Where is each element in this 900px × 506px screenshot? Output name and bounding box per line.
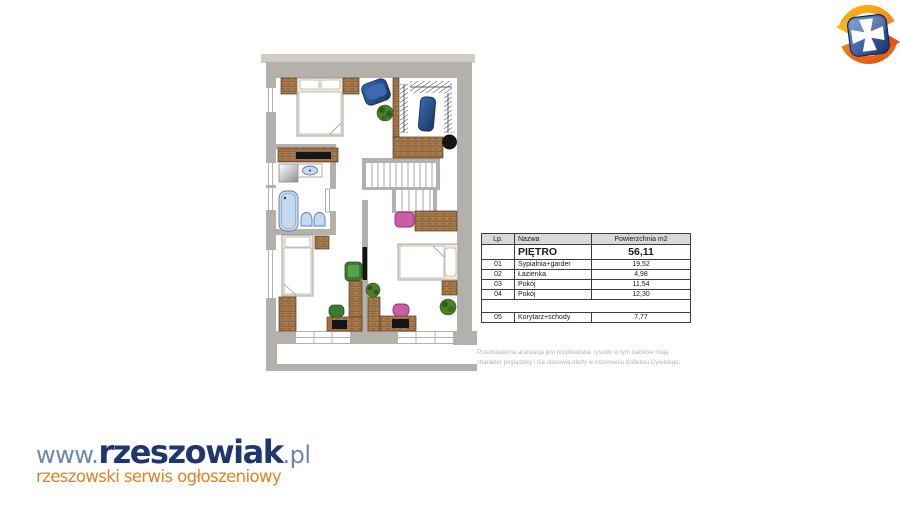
garderobe (393, 81, 457, 158)
toilet (301, 213, 312, 226)
site-watermark: www.rzeszowiak.pl rzeszowski serwis ogło… (36, 433, 311, 486)
room-sypialnia (281, 77, 399, 138)
window-left-3 (265, 188, 276, 210)
table-row: 02 Łazienka 4,98 (482, 270, 691, 280)
table-row: 04 Pokój 12,30 (482, 290, 691, 300)
table-row: 05 Korytarz+schody 7,77 (482, 313, 691, 323)
plant-04 (440, 299, 456, 315)
staircase (362, 158, 440, 213)
wall-bath-right-b (330, 211, 336, 231)
wardrobe-03 (279, 297, 296, 331)
table-row: 01 Sypialnia+garder 19,52 (482, 260, 691, 270)
nightstand-04 (442, 281, 457, 295)
laptop-04 (392, 319, 409, 328)
col-header-powierzchnia: Powierzchnia m2 (592, 234, 691, 245)
tv-wall-unit (278, 148, 338, 162)
ottoman-pink (395, 212, 414, 227)
page-root: Lp. Nazwa Powierzchnia m2 PIĘTRO 56,11 0… (0, 0, 900, 506)
wall-top (266, 62, 472, 78)
shower (279, 164, 298, 182)
wall-mounted-tv (363, 247, 368, 280)
area-table: Lp. Nazwa Powierzchnia m2 PIĘTRO 56,11 0… (481, 233, 691, 323)
floor-name: PIĘTRO (515, 245, 592, 260)
armchair-green (345, 262, 362, 281)
table-header-row: Lp. Nazwa Powierzchnia m2 (482, 234, 691, 245)
wall-corner-br (453, 331, 477, 345)
brand-tagline: rzeszowski serwis ogłoszeniowy (36, 467, 311, 486)
emblem-shield (847, 14, 890, 57)
table-row-floor-total: PIĘTRO 56,11 (482, 245, 691, 260)
laptop-03 (332, 320, 347, 329)
chaise-longue (418, 96, 436, 131)
sideboard-hall (415, 211, 457, 231)
bathtub (279, 191, 298, 231)
plant-bedroom (377, 105, 393, 121)
armchair-blue (360, 77, 392, 107)
plant-hall (366, 283, 380, 297)
table-spacer-row (482, 300, 691, 313)
window-bottom-2 (398, 332, 453, 343)
room-pokoj-04 (368, 244, 458, 331)
window-left-2 (265, 163, 276, 185)
floor-area: 56,11 (592, 245, 691, 260)
room-lazienka (279, 164, 330, 231)
table-row: 03 Pokój 11,54 (482, 280, 691, 290)
nightstand-right (343, 78, 359, 94)
desk-04-vertical (368, 297, 380, 331)
window-left-4 (265, 250, 276, 298)
roof-outline (261, 54, 475, 63)
wall-bath-right-a (330, 162, 336, 189)
floor-plan (258, 50, 480, 374)
nightstand-03 (315, 236, 329, 249)
terrace (277, 344, 453, 364)
wall-right (457, 62, 472, 332)
terrace-wall-bottom (266, 364, 477, 371)
desk-chair-03 (329, 305, 344, 317)
col-header-lp: Lp. (482, 234, 515, 245)
double-bed (297, 78, 343, 136)
disclaimer-line-1: Przedstawiona aranżacja jest przykładowa… (477, 349, 702, 359)
round-side-table (442, 135, 457, 150)
col-header-nazwa: Nazwa (515, 234, 592, 245)
single-bed-04 (398, 244, 458, 280)
brand-tld: .pl (282, 441, 310, 469)
rzeszow-emblem-icon (836, 3, 900, 67)
tv-screen (296, 152, 331, 159)
bidet (314, 213, 325, 226)
disclaimer-text: Przedstawiona aranżacja jest przykładowa… (477, 349, 702, 368)
window-left-1 (265, 88, 276, 112)
brand-www: www. (36, 441, 98, 469)
washbasin (298, 164, 322, 177)
single-bed-03 (282, 235, 313, 296)
bathroom-door (326, 189, 330, 212)
brand-name: rzeszowiak (98, 433, 282, 471)
window-bottom-1 (296, 332, 350, 343)
desk-chair-04 (393, 304, 409, 316)
site-url: www.rzeszowiak.pl (36, 433, 311, 471)
nightstand-left (281, 78, 297, 94)
wardrobe-divider (393, 78, 399, 138)
sideboard-garderobe (393, 137, 443, 158)
disclaimer-line-2: charakter poglądowy i nie stanowią ofert… (477, 359, 702, 369)
